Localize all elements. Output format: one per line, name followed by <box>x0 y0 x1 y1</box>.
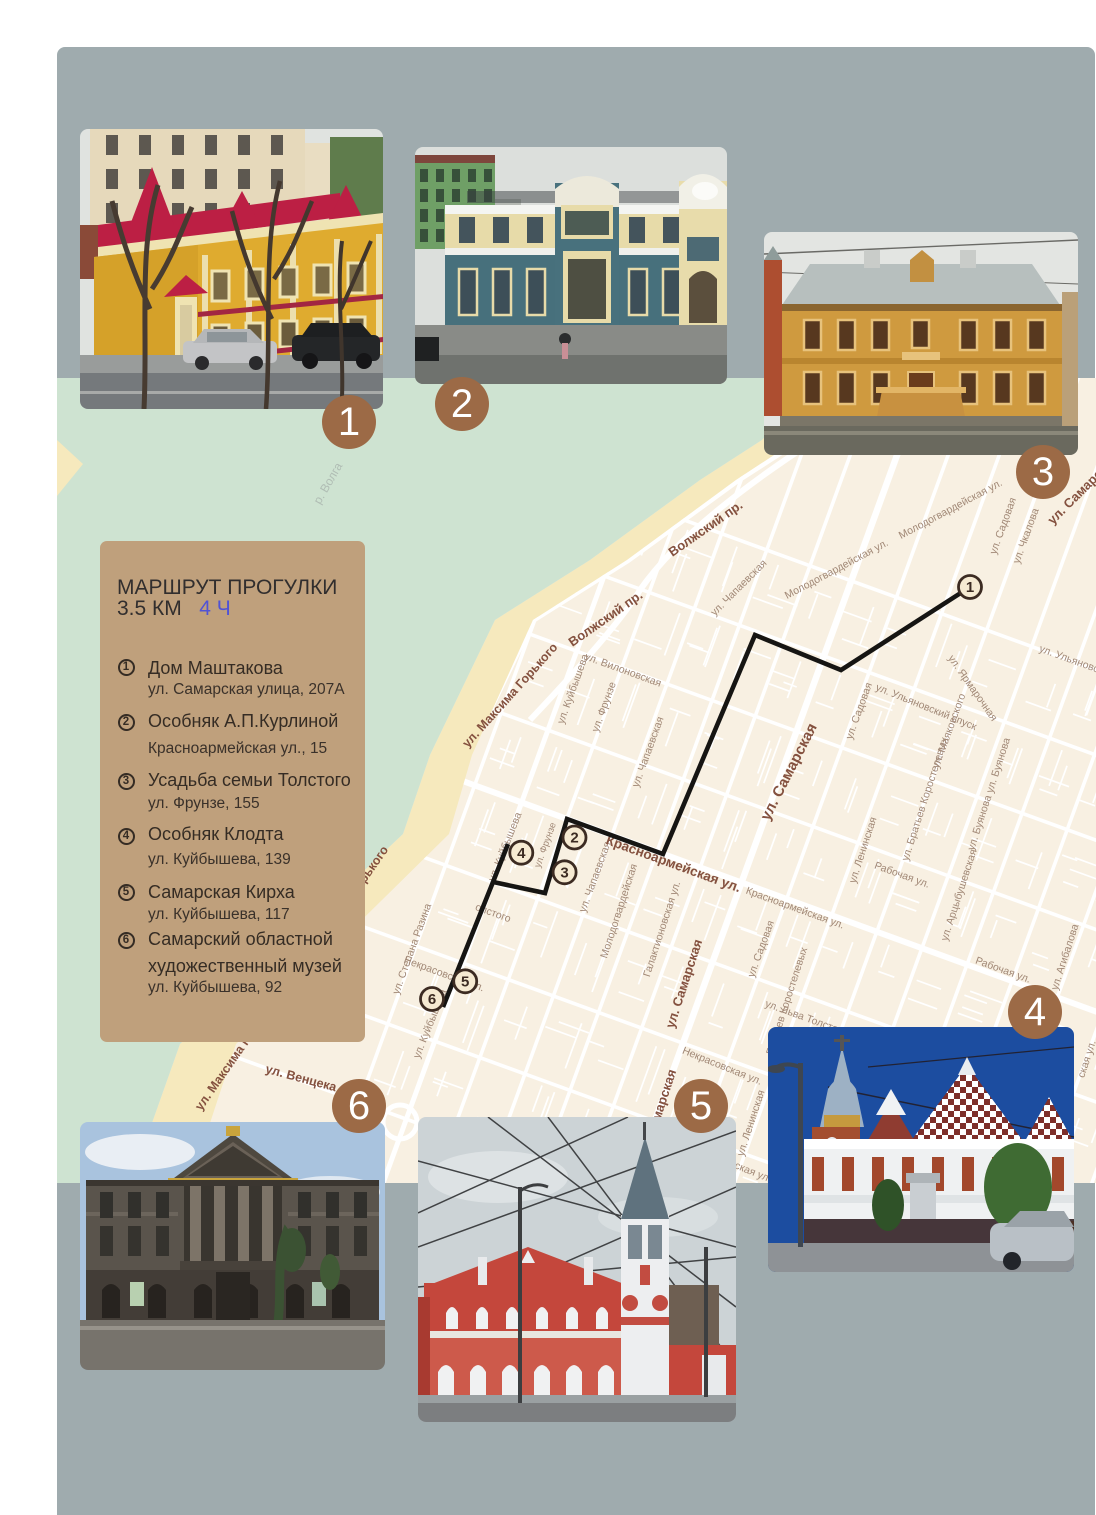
svg-text:6: 6 <box>428 991 436 1008</box>
svg-text:3: 3 <box>560 865 568 882</box>
svg-text:1: 1 <box>966 579 974 596</box>
svg-text:5: 5 <box>461 974 469 991</box>
svg-text:4: 4 <box>517 845 526 862</box>
svg-text:2: 2 <box>570 830 578 847</box>
